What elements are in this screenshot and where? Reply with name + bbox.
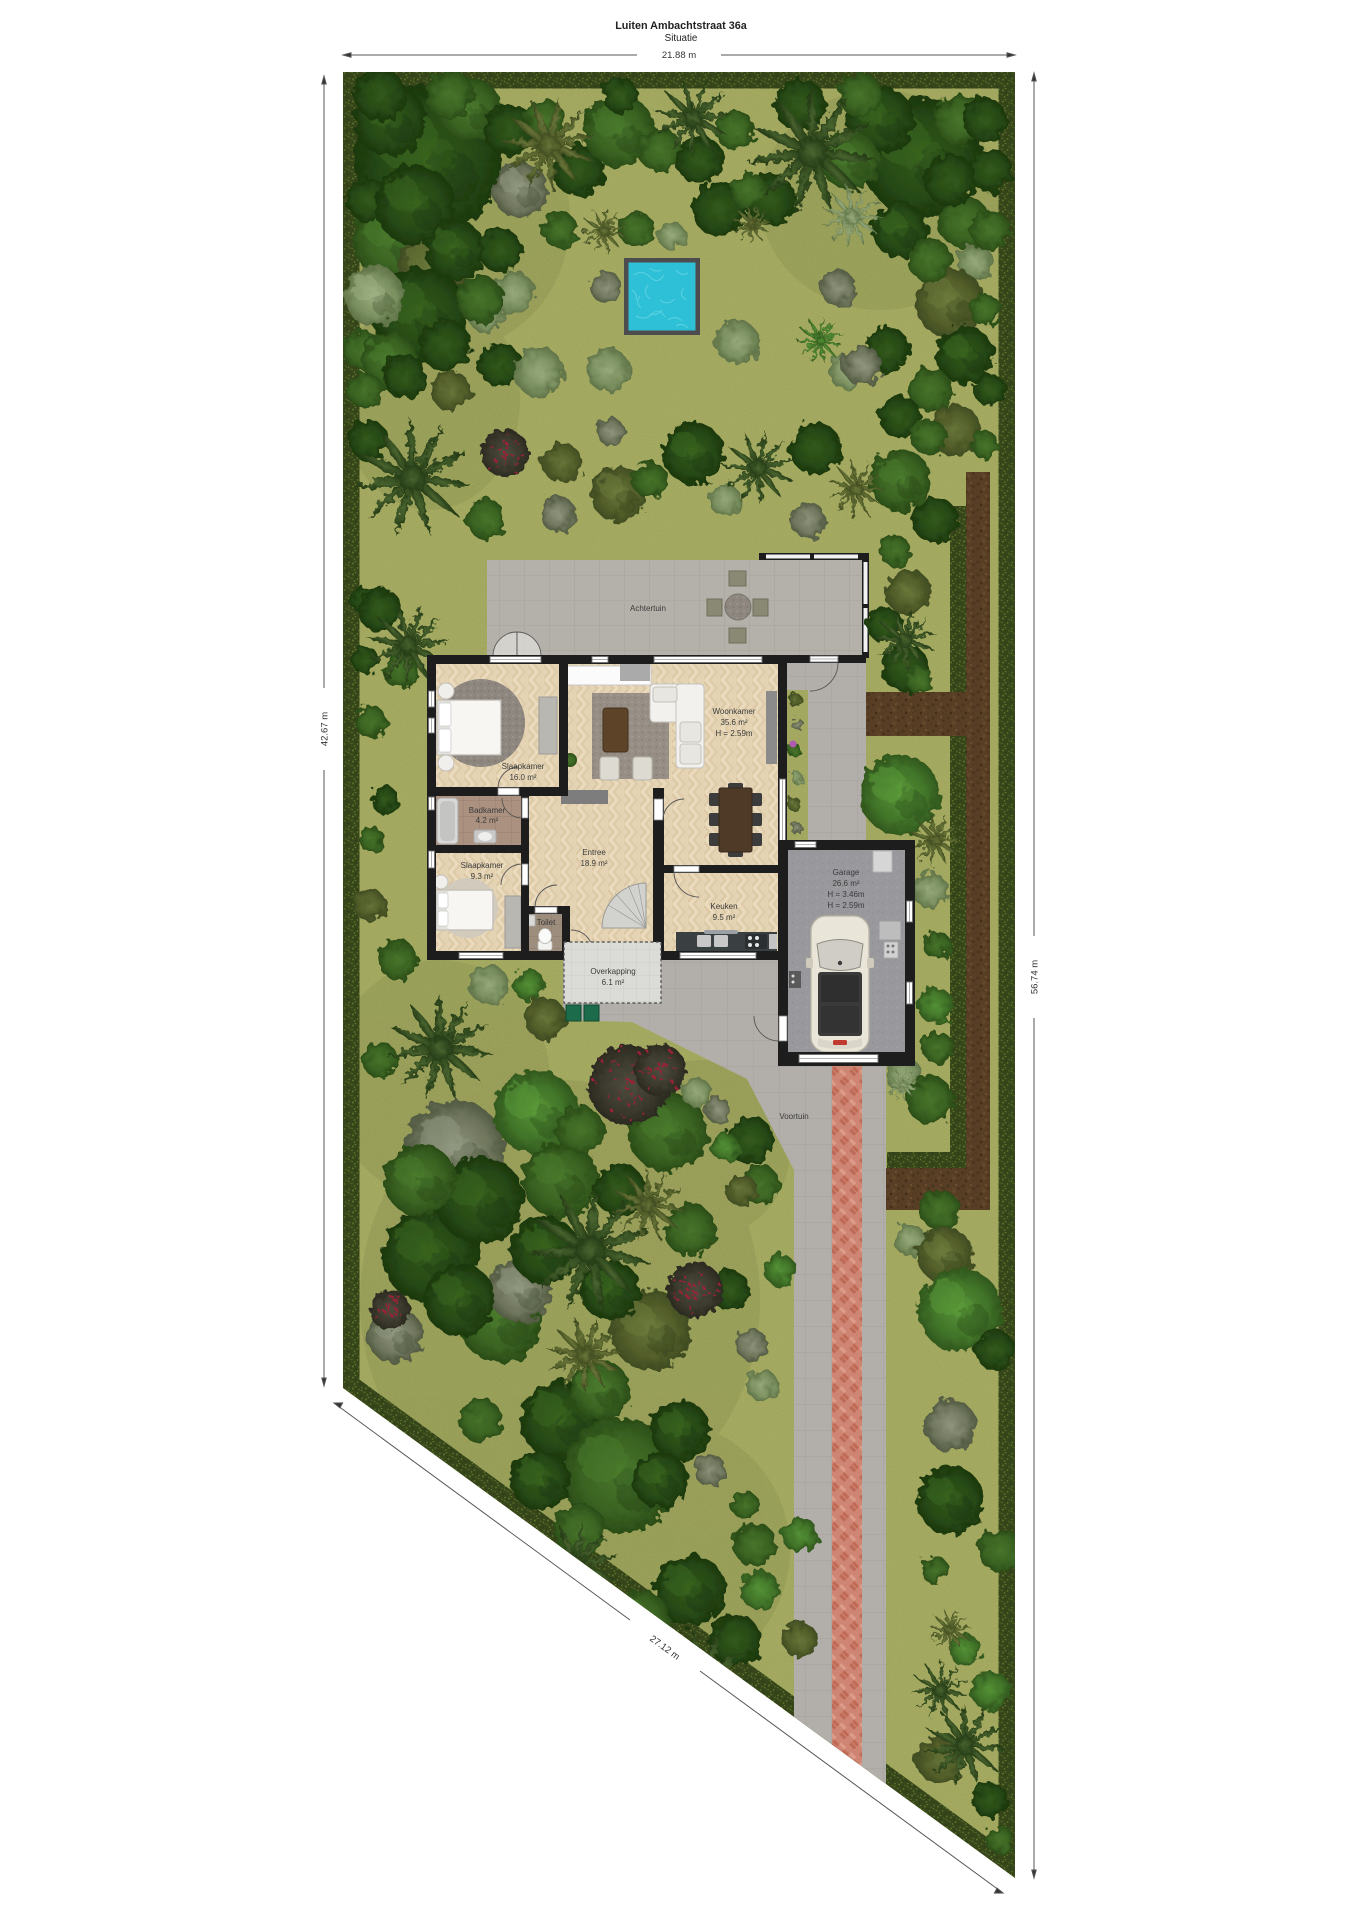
svg-text:42.67 m: 42.67 m xyxy=(320,712,331,746)
svg-text:Badkamer: Badkamer xyxy=(469,806,506,815)
svg-text:Keuken: Keuken xyxy=(710,902,737,911)
svg-text:6.1 m²: 6.1 m² xyxy=(602,978,625,987)
svg-text:Entree: Entree xyxy=(582,848,606,857)
svg-text:18.9 m²: 18.9 m² xyxy=(580,859,607,868)
svg-text:9.3 m²: 9.3 m² xyxy=(471,872,494,881)
svg-text:H = 2.59m: H = 2.59m xyxy=(827,901,864,910)
svg-text:Slaapkamer: Slaapkamer xyxy=(502,762,545,771)
svg-text:Voortuin: Voortuin xyxy=(779,1112,808,1121)
svg-text:Toilet: Toilet xyxy=(537,918,556,927)
svg-text:35.6 m²: 35.6 m² xyxy=(720,718,747,727)
svg-text:Slaapkamer: Slaapkamer xyxy=(461,861,504,870)
svg-text:21.88 m: 21.88 m xyxy=(662,50,696,61)
svg-text:H = 3.46m: H = 3.46m xyxy=(827,890,864,899)
svg-text:Situatie: Situatie xyxy=(665,33,698,44)
svg-text:Garage: Garage xyxy=(833,868,860,877)
svg-text:16.0 m²: 16.0 m² xyxy=(509,773,536,782)
svg-text:H = 2.59m: H = 2.59m xyxy=(715,729,752,738)
svg-text:56.74 m: 56.74 m xyxy=(1030,960,1041,994)
svg-text:4.2 m²: 4.2 m² xyxy=(476,816,499,825)
svg-text:26.6 m²: 26.6 m² xyxy=(832,879,859,888)
svg-text:Overkapping: Overkapping xyxy=(590,967,635,976)
svg-text:Achtertuin: Achtertuin xyxy=(630,604,666,613)
svg-text:9.5 m²: 9.5 m² xyxy=(713,913,736,922)
svg-text:Woonkamer: Woonkamer xyxy=(713,707,756,716)
svg-text:Luiten Ambachtstraat 36a: Luiten Ambachtstraat 36a xyxy=(615,20,748,32)
